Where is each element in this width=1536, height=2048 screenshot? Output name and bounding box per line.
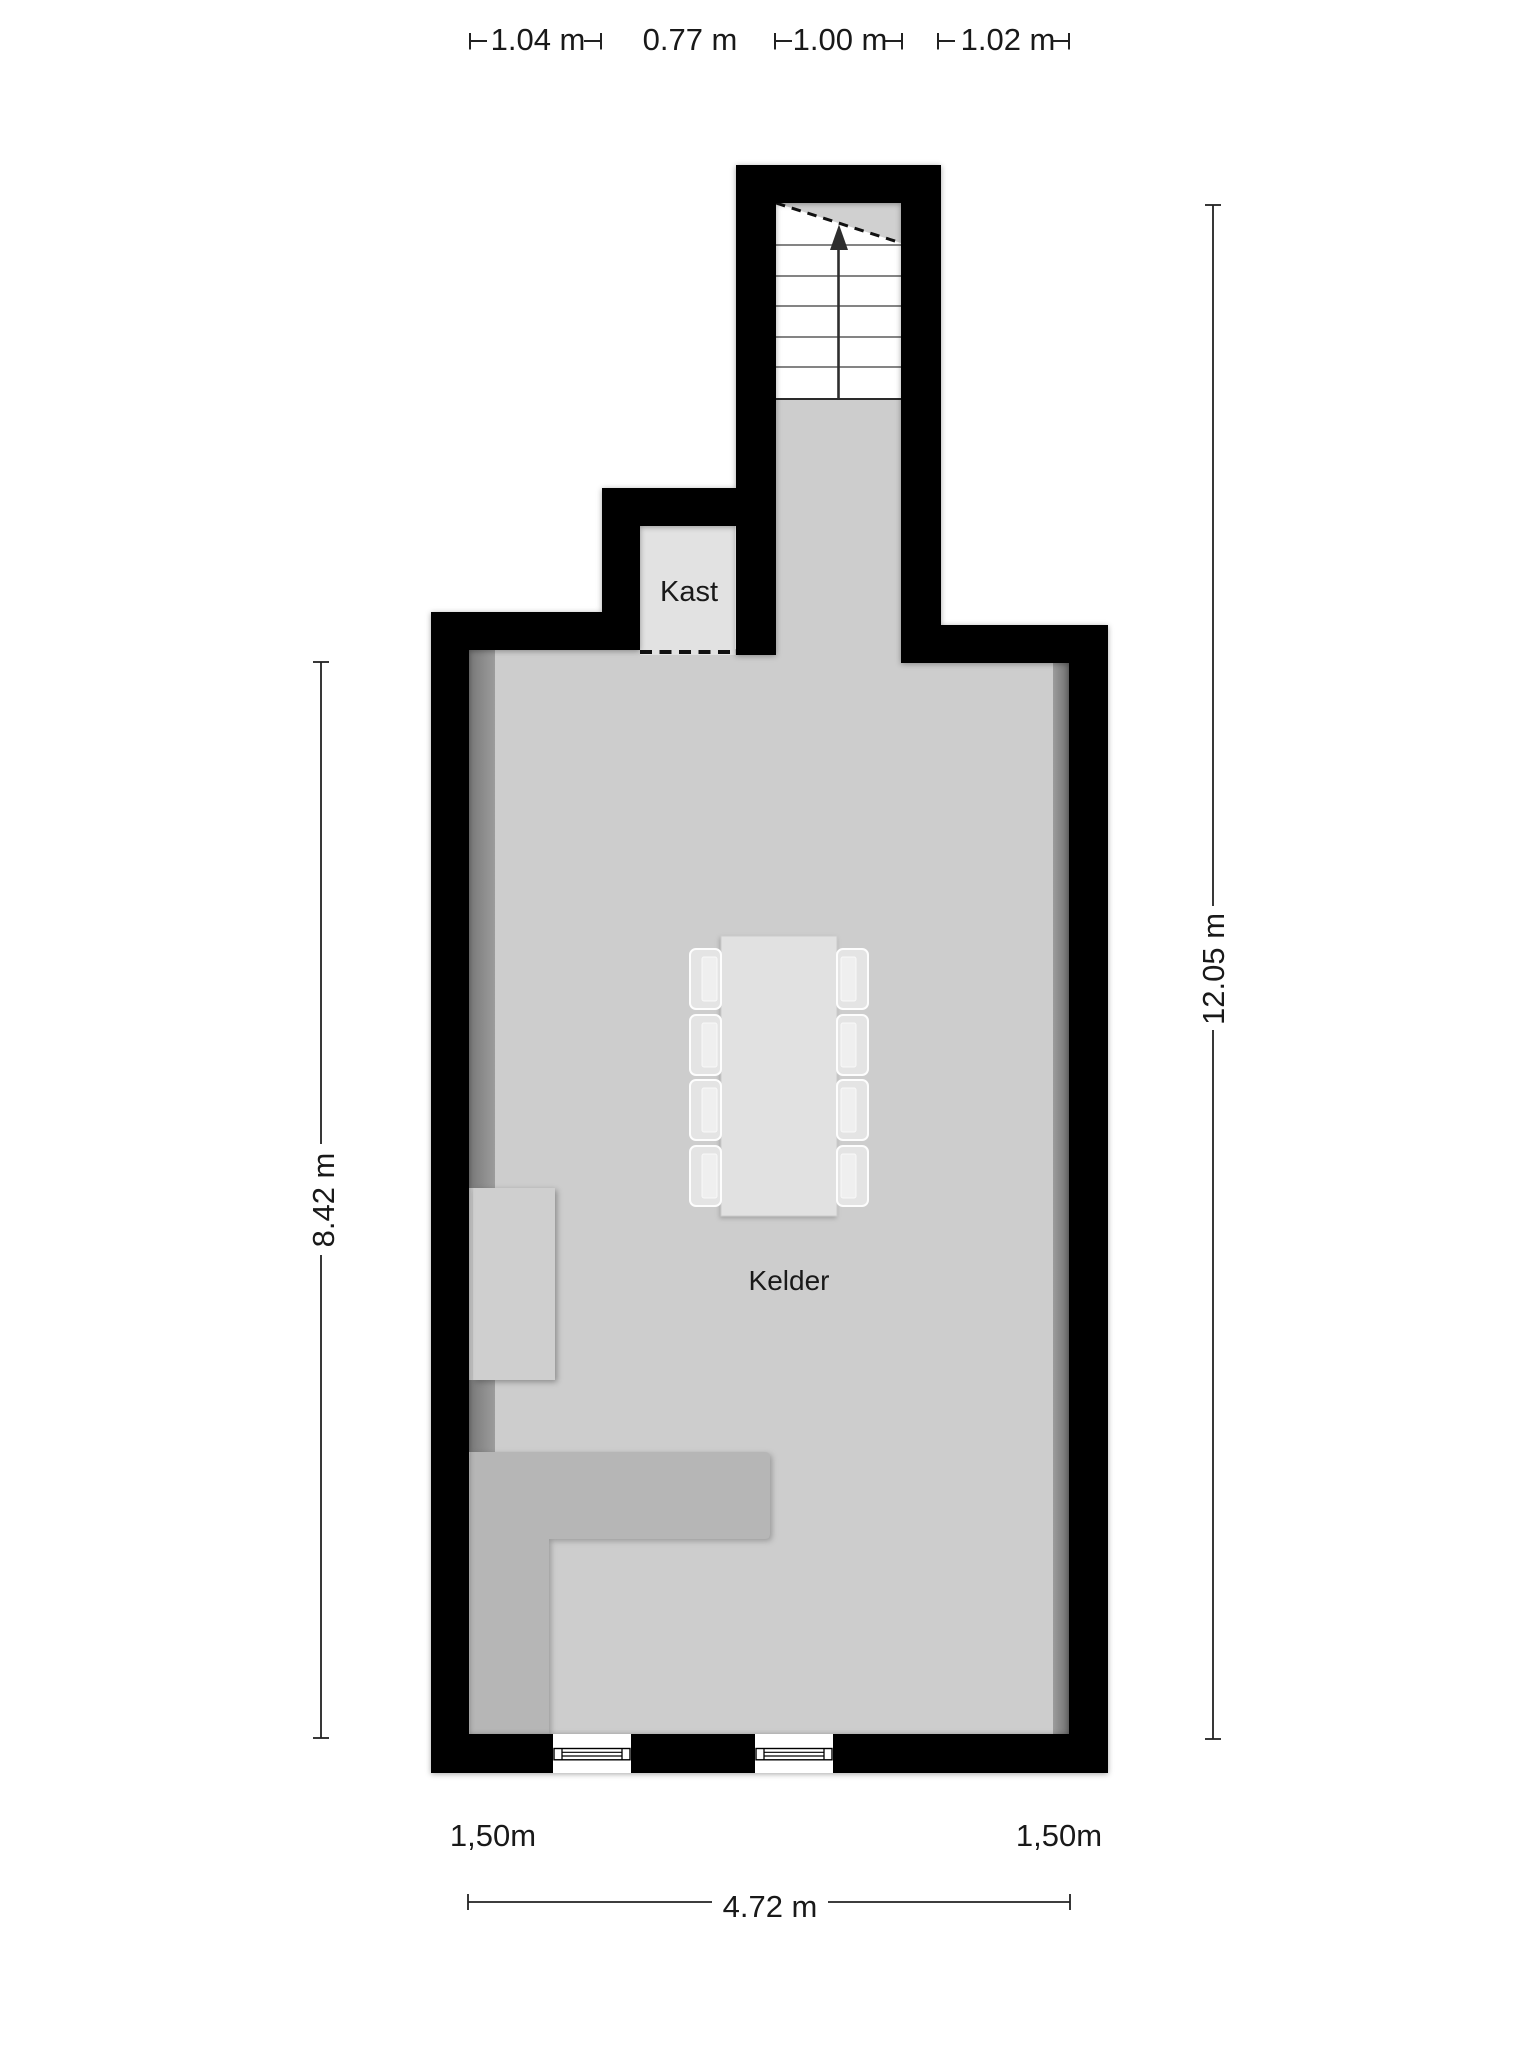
svg-text:Kelder: Kelder [749,1265,830,1296]
svg-text:0.77 m: 0.77 m [643,22,738,57]
svg-text:1,50m: 1,50m [450,1818,536,1853]
svg-text:1.04 m: 1.04 m [491,22,586,57]
svg-text:4.72 m: 4.72 m [723,1889,818,1924]
svg-text:Kast: Kast [660,576,718,608]
svg-text:12.05 m: 12.05 m [1196,913,1231,1025]
svg-text:1,50m: 1,50m [1016,1818,1102,1853]
svg-text:1.00 m: 1.00 m [793,22,888,57]
svg-text:1.02 m: 1.02 m [961,22,1056,57]
svg-text:8.42 m: 8.42 m [306,1153,341,1248]
